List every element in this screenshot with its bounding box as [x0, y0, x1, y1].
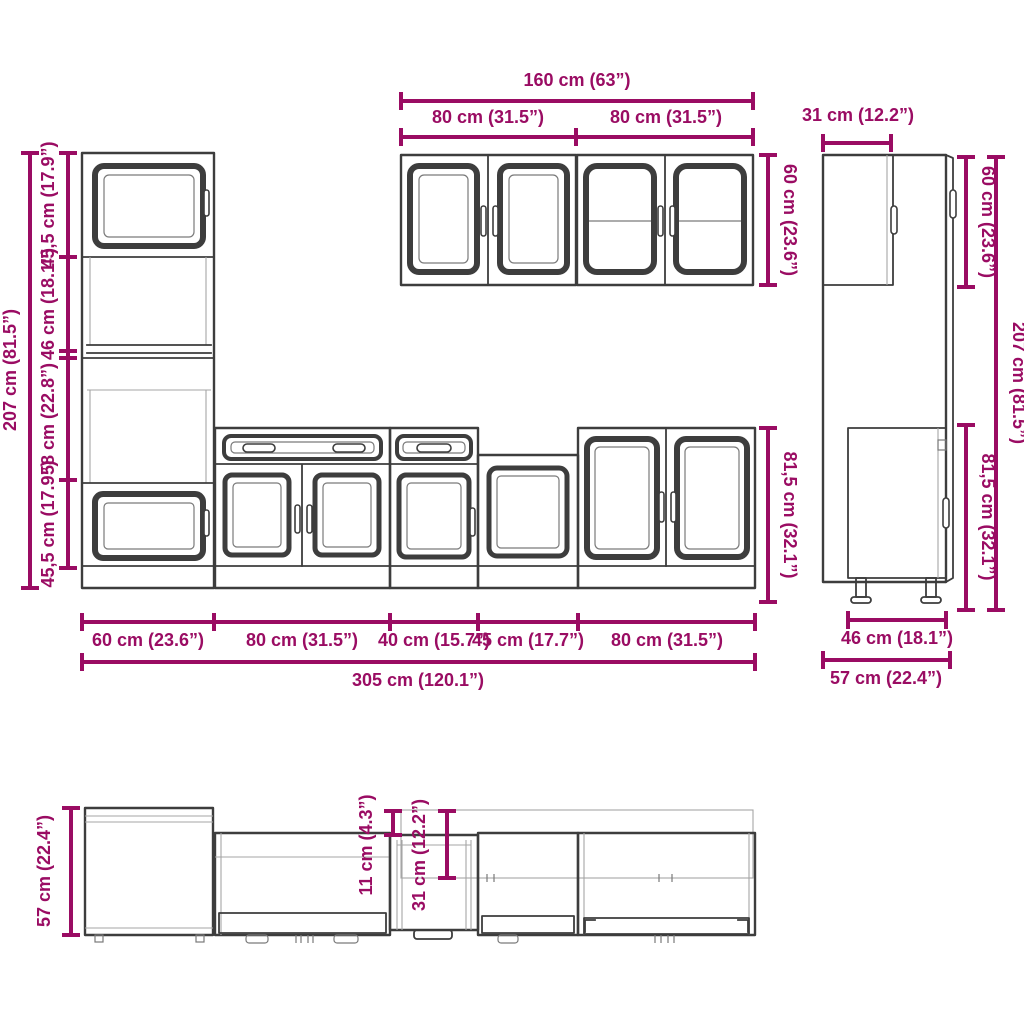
glass-door-panel: [586, 166, 654, 272]
plan-base-outline: [478, 833, 578, 935]
dim-label: 31 cm (12.2”): [802, 105, 914, 125]
dim-wall-halves: 80 cm (31.5”) 80 cm (31.5”): [401, 107, 753, 146]
plan-base-45: [478, 833, 578, 943]
door-panel-inner: [233, 483, 281, 547]
door-handle: [891, 206, 897, 234]
shelf-lines: [87, 345, 211, 353]
door-handle: [204, 190, 209, 216]
plan-base-80-2: [578, 833, 755, 943]
side-view: [823, 155, 956, 603]
door-handle: [204, 510, 209, 536]
door-panel: [410, 166, 477, 272]
door-handle: [659, 492, 664, 522]
door-handle: [671, 492, 676, 522]
dim-plan-offset: 11 cm (4.3”): [356, 794, 402, 895]
dim-wall-total-width: 160 cm (63”): [401, 70, 753, 110]
dim-plan-wall-depth: 31 cm (12.2”): [409, 799, 456, 911]
drawer-handle: [417, 444, 451, 452]
dim-label: 45,5 cm (17.9”): [38, 460, 58, 587]
tall-niche: [87, 257, 211, 353]
glass-door-panel: [676, 166, 744, 272]
plan-tall-inner-lines: [85, 816, 213, 928]
drawer-bottom-line: [87, 390, 211, 483]
plan-tall-cabinet: [85, 808, 213, 942]
dim-label: 305 cm (120.1”): [352, 670, 484, 690]
wall-cabinet-right: [577, 155, 753, 285]
drawer-handle: [333, 444, 365, 452]
door-panel-inner: [323, 483, 371, 547]
dim-side-total-depth: 57 cm (22.4”): [823, 651, 950, 688]
kitchen-dimension-drawing: 160 cm (63”) 80 cm (31.5”) 80 cm (31.5”)…: [0, 0, 1024, 1024]
plan-door-front: [584, 918, 749, 934]
door-panel: [399, 475, 469, 557]
dim-label: 57 cm (22.4”): [34, 815, 54, 927]
dim-side-base-depth: 46 cm (18.1”): [841, 611, 953, 648]
door-panel: [489, 468, 567, 556]
door-handle: [658, 206, 663, 236]
dim-total-height-left: 207 cm (81.5”): [0, 153, 39, 588]
dim-label: 57 cm (22.4”): [830, 668, 942, 688]
leg-foot: [921, 597, 941, 603]
dim-total-width: 305 cm (120.1”): [82, 653, 755, 690]
dim-label: 160 cm (63”): [523, 70, 630, 90]
dim-label: 80 cm (31.5”): [246, 630, 358, 650]
dim-label: 46 cm (18.1”): [38, 248, 58, 360]
door-panel-inner: [104, 503, 194, 549]
niche-sides: [90, 257, 206, 345]
diagram-canvas: 160 cm (63”) 80 cm (31.5”) 80 cm (31.5”)…: [0, 0, 1024, 1024]
dim-plan-depth: 57 cm (22.4”): [34, 808, 80, 935]
door-handle: [295, 505, 300, 533]
front-view: [82, 153, 755, 588]
plan-base-outline: [390, 835, 478, 930]
side-base-cabinet: [848, 428, 949, 603]
dim-tall-segments: 45,5 cm (17.9”) 46 cm (18.1”) 58 cm (22.…: [38, 141, 77, 587]
dim-label: 81,5 cm (32.1”): [780, 451, 800, 578]
door-panel-inner: [509, 175, 558, 263]
base-cabinet-40: [390, 428, 478, 588]
plan-door-front: [482, 916, 574, 933]
tall-top-door: [95, 166, 209, 246]
door-handle: [950, 190, 956, 218]
dim-side-wall-height: 60 cm (23.6”): [957, 157, 998, 287]
plan-front-tab: [414, 930, 452, 939]
dim-label: 207 cm (81.5”): [1009, 322, 1024, 444]
side-wall-outline: [823, 155, 893, 285]
dim-label: 207 cm (81.5”): [0, 309, 20, 431]
base-cabinet-80-doors: [578, 428, 755, 588]
dim-label: 45 cm (17.7”): [472, 630, 584, 650]
door-panel: [500, 166, 567, 272]
base-cabinet-80-drawer: [215, 428, 390, 588]
door-panel-inner: [685, 447, 739, 549]
dim-label: 11 cm (4.3”): [356, 794, 376, 895]
door-panel: [95, 166, 203, 246]
door-panel: [677, 439, 747, 557]
dim-label: 81,5 cm (32.1”): [978, 453, 998, 580]
dim-label: 80 cm (31.5”): [610, 107, 722, 127]
door-handle: [470, 508, 475, 536]
dim-label: 80 cm (31.5”): [432, 107, 544, 127]
door-handle: [481, 206, 486, 236]
door-panel: [225, 475, 289, 555]
plan-side-panels: [584, 833, 749, 935]
door-panel-inner: [595, 447, 649, 549]
door-panel-inner: [497, 476, 559, 548]
base-cabinet-45: [478, 455, 578, 588]
side-base-outline: [848, 428, 946, 578]
plan-door-front: [219, 913, 386, 933]
side-wall-cabinet: [823, 155, 897, 285]
dim-side-wall-depth: 31 cm (12.2”): [802, 105, 914, 152]
plan-base-40-sink: [390, 835, 478, 939]
corner-brackets: [585, 920, 748, 932]
leg-foot: [851, 597, 871, 603]
plan-base-outline: [578, 833, 755, 935]
door-handle: [307, 505, 312, 533]
tall-bottom-door: [95, 494, 209, 558]
door-handle: [943, 498, 949, 528]
drawer-handle: [243, 444, 275, 452]
dim-side-base-height: 81,5 cm (32.1”): [957, 425, 998, 610]
dim-wall-height-front: 60 cm (23.6”): [759, 155, 800, 285]
dim-label: 60 cm (23.6”): [780, 164, 800, 276]
door-panel: [315, 475, 379, 555]
door-panel-inner: [104, 175, 194, 237]
tall-cabinet: [82, 153, 214, 588]
door-panel-inner: [419, 175, 468, 263]
plan-tall-outline: [85, 808, 213, 935]
dim-label: 46 cm (18.1”): [841, 628, 953, 648]
dim-unit-widths: 60 cm (23.6”) 80 cm (31.5”) 40 cm (15.7”…: [82, 613, 755, 650]
tall-drawer-band: [82, 358, 214, 483]
side-outline: [823, 155, 946, 582]
door-handle: [493, 206, 498, 236]
dim-base-height-front: 81,5 cm (32.1”): [759, 428, 800, 602]
wall-cabinet-left: [401, 155, 576, 285]
door-panel-inner: [407, 483, 461, 549]
door-panel: [587, 439, 657, 557]
dim-label: 80 cm (31.5”): [611, 630, 723, 650]
base-outline: [478, 455, 578, 588]
drawer-door-separator: [215, 464, 390, 566]
dim-label: 60 cm (23.6”): [92, 630, 204, 650]
door-handle: [670, 206, 675, 236]
dim-label: 58 cm (22.8”): [38, 363, 58, 475]
dim-label: 31 cm (12.2”): [409, 799, 429, 911]
